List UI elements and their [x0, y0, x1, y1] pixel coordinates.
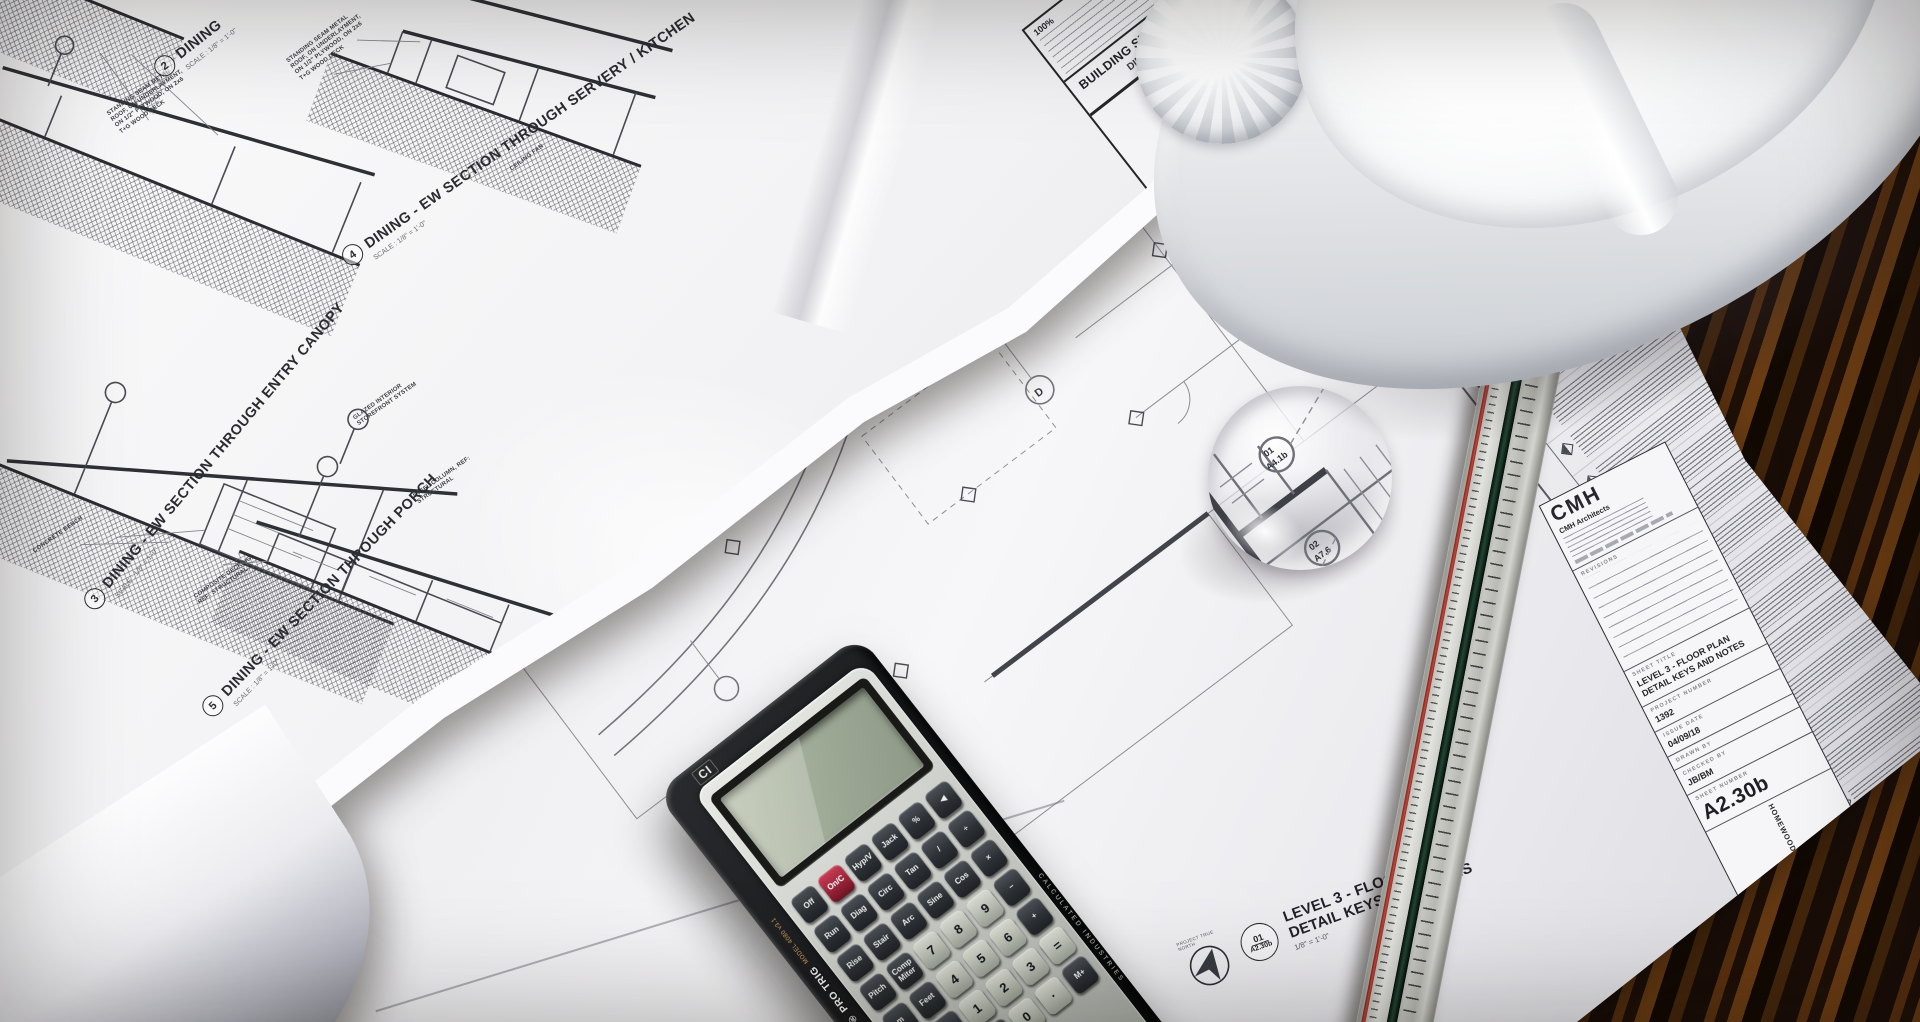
drawing-number: 5 — [198, 691, 228, 721]
page-fold-crease — [772, 0, 948, 334]
blueprints-desk-photo: D PARTITION TYPES 4" CMU8" CMU12" CMU6" … — [0, 0, 1920, 1022]
